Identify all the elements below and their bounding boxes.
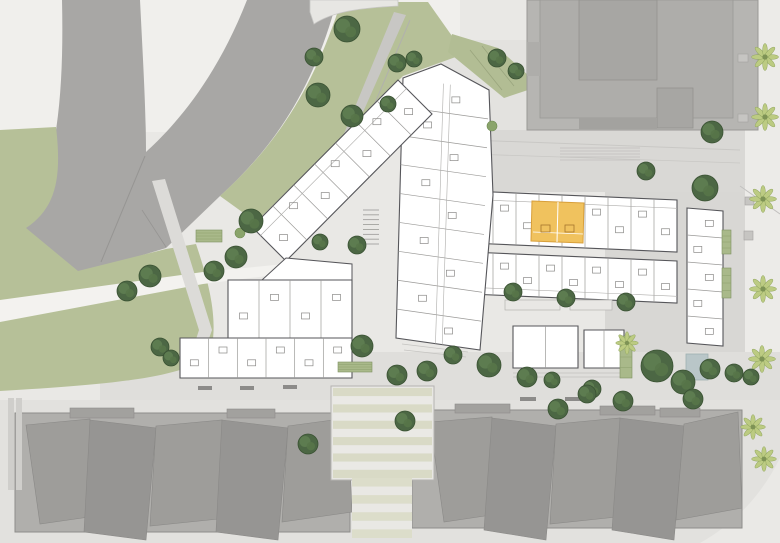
tree bbox=[444, 346, 462, 364]
tree bbox=[204, 261, 224, 281]
tree bbox=[380, 96, 396, 112]
palm-tree bbox=[749, 275, 776, 302]
tree bbox=[334, 16, 360, 42]
tree bbox=[348, 236, 366, 254]
tree bbox=[387, 365, 407, 385]
curb bbox=[8, 398, 14, 490]
palm-tree bbox=[751, 43, 778, 70]
garden-house-east bbox=[584, 330, 624, 368]
tree bbox=[488, 49, 506, 67]
tree bbox=[692, 175, 718, 201]
tree bbox=[306, 83, 330, 107]
tree bbox=[504, 283, 522, 301]
clerestory bbox=[70, 408, 134, 418]
utility-box bbox=[738, 114, 748, 122]
tree bbox=[508, 63, 524, 79]
tree bbox=[417, 361, 437, 381]
tree bbox=[683, 389, 703, 409]
bench bbox=[198, 386, 212, 390]
tree bbox=[341, 105, 363, 127]
utility-box bbox=[744, 231, 753, 240]
tree bbox=[557, 289, 575, 307]
roof-plane bbox=[150, 420, 228, 526]
building-southwest-lower bbox=[180, 338, 352, 378]
roof-plane bbox=[612, 418, 684, 540]
stepped-ramp-lower bbox=[352, 478, 412, 538]
tree bbox=[117, 281, 137, 301]
stepped-ramp bbox=[333, 388, 432, 478]
tree bbox=[641, 350, 673, 382]
existing-building-tab bbox=[527, 42, 540, 76]
roof-plane bbox=[676, 412, 742, 520]
tree bbox=[743, 369, 759, 385]
tree bbox=[617, 293, 635, 311]
planter bbox=[338, 362, 372, 372]
tree bbox=[544, 372, 560, 388]
tree bbox=[312, 234, 328, 250]
tree bbox=[388, 54, 406, 72]
clerestory bbox=[227, 409, 275, 418]
tree bbox=[725, 364, 743, 382]
tree bbox=[298, 434, 318, 454]
tree bbox=[517, 367, 537, 387]
bench bbox=[283, 385, 297, 389]
roof-plane bbox=[484, 418, 556, 540]
building-southwest-upper bbox=[228, 280, 352, 338]
planter bbox=[722, 268, 731, 298]
garden-house-west bbox=[513, 326, 578, 368]
tree bbox=[225, 246, 247, 268]
patio-wall bbox=[570, 300, 612, 310]
tree bbox=[548, 399, 568, 419]
palm-tree bbox=[752, 447, 777, 472]
palm-tree bbox=[616, 332, 639, 355]
existing-building-north-core bbox=[579, 0, 657, 80]
palm-tree bbox=[741, 415, 766, 440]
tree bbox=[578, 385, 596, 403]
utility-box bbox=[738, 54, 748, 62]
tree bbox=[701, 121, 723, 143]
site-plan-canvas bbox=[0, 0, 780, 543]
tree bbox=[139, 265, 161, 287]
shrub bbox=[487, 121, 497, 131]
tree bbox=[613, 391, 633, 411]
tree bbox=[239, 209, 263, 233]
roof-plane bbox=[84, 420, 156, 540]
tree bbox=[305, 48, 323, 66]
roof-plane bbox=[216, 420, 288, 540]
existing-building-tab bbox=[579, 118, 657, 129]
site-plan bbox=[0, 0, 780, 543]
tree bbox=[406, 51, 422, 67]
tree bbox=[700, 359, 720, 379]
palm-tree bbox=[748, 345, 775, 372]
planter bbox=[196, 230, 222, 242]
tree bbox=[163, 350, 179, 366]
clerestory bbox=[455, 404, 510, 413]
bench bbox=[520, 397, 536, 401]
building-east-wing bbox=[687, 208, 723, 346]
tree bbox=[351, 335, 373, 357]
existing-building-annex bbox=[657, 88, 693, 128]
curb bbox=[16, 398, 22, 490]
patio-wall bbox=[505, 300, 560, 310]
planter bbox=[722, 230, 731, 254]
palm-tree bbox=[751, 103, 778, 130]
bench bbox=[240, 386, 254, 390]
tree bbox=[477, 353, 501, 377]
tree bbox=[637, 162, 655, 180]
palm-tree bbox=[749, 185, 776, 212]
tree bbox=[395, 411, 415, 431]
